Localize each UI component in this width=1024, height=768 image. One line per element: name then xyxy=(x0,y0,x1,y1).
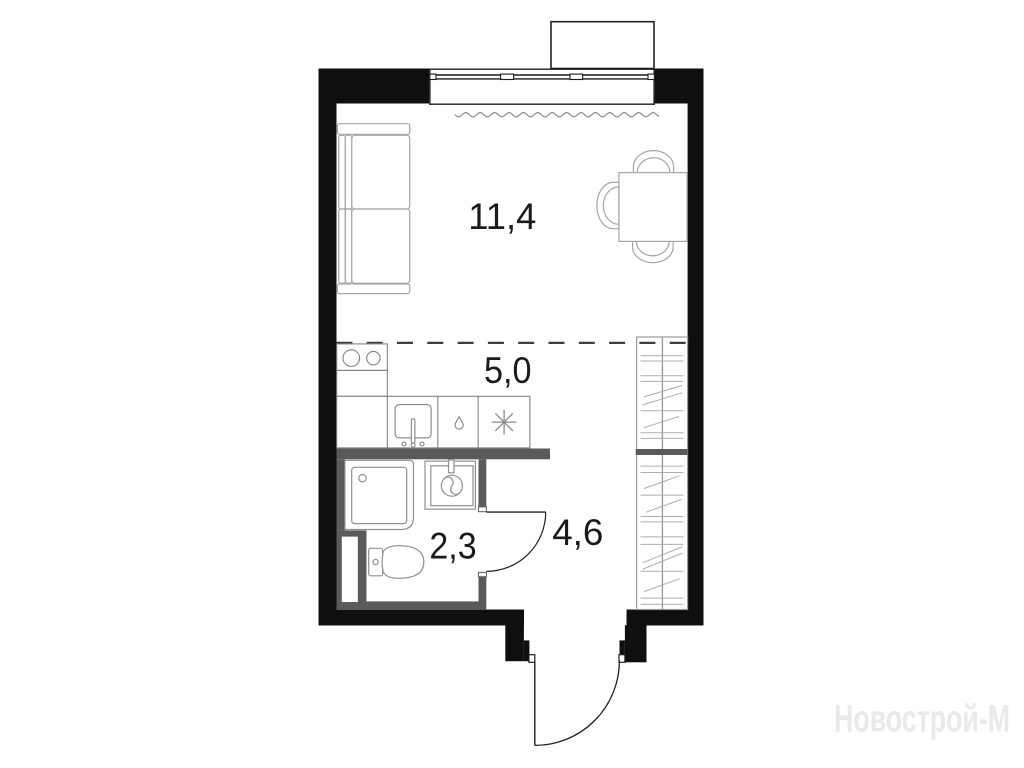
svg-text:Новострой-М: Новострой-М xyxy=(834,699,1010,741)
svg-text:4,6: 4,6 xyxy=(552,512,603,553)
svg-text:2,3: 2,3 xyxy=(429,526,476,567)
svg-text:11,4: 11,4 xyxy=(468,196,536,237)
svg-text:5,0: 5,0 xyxy=(484,350,532,391)
